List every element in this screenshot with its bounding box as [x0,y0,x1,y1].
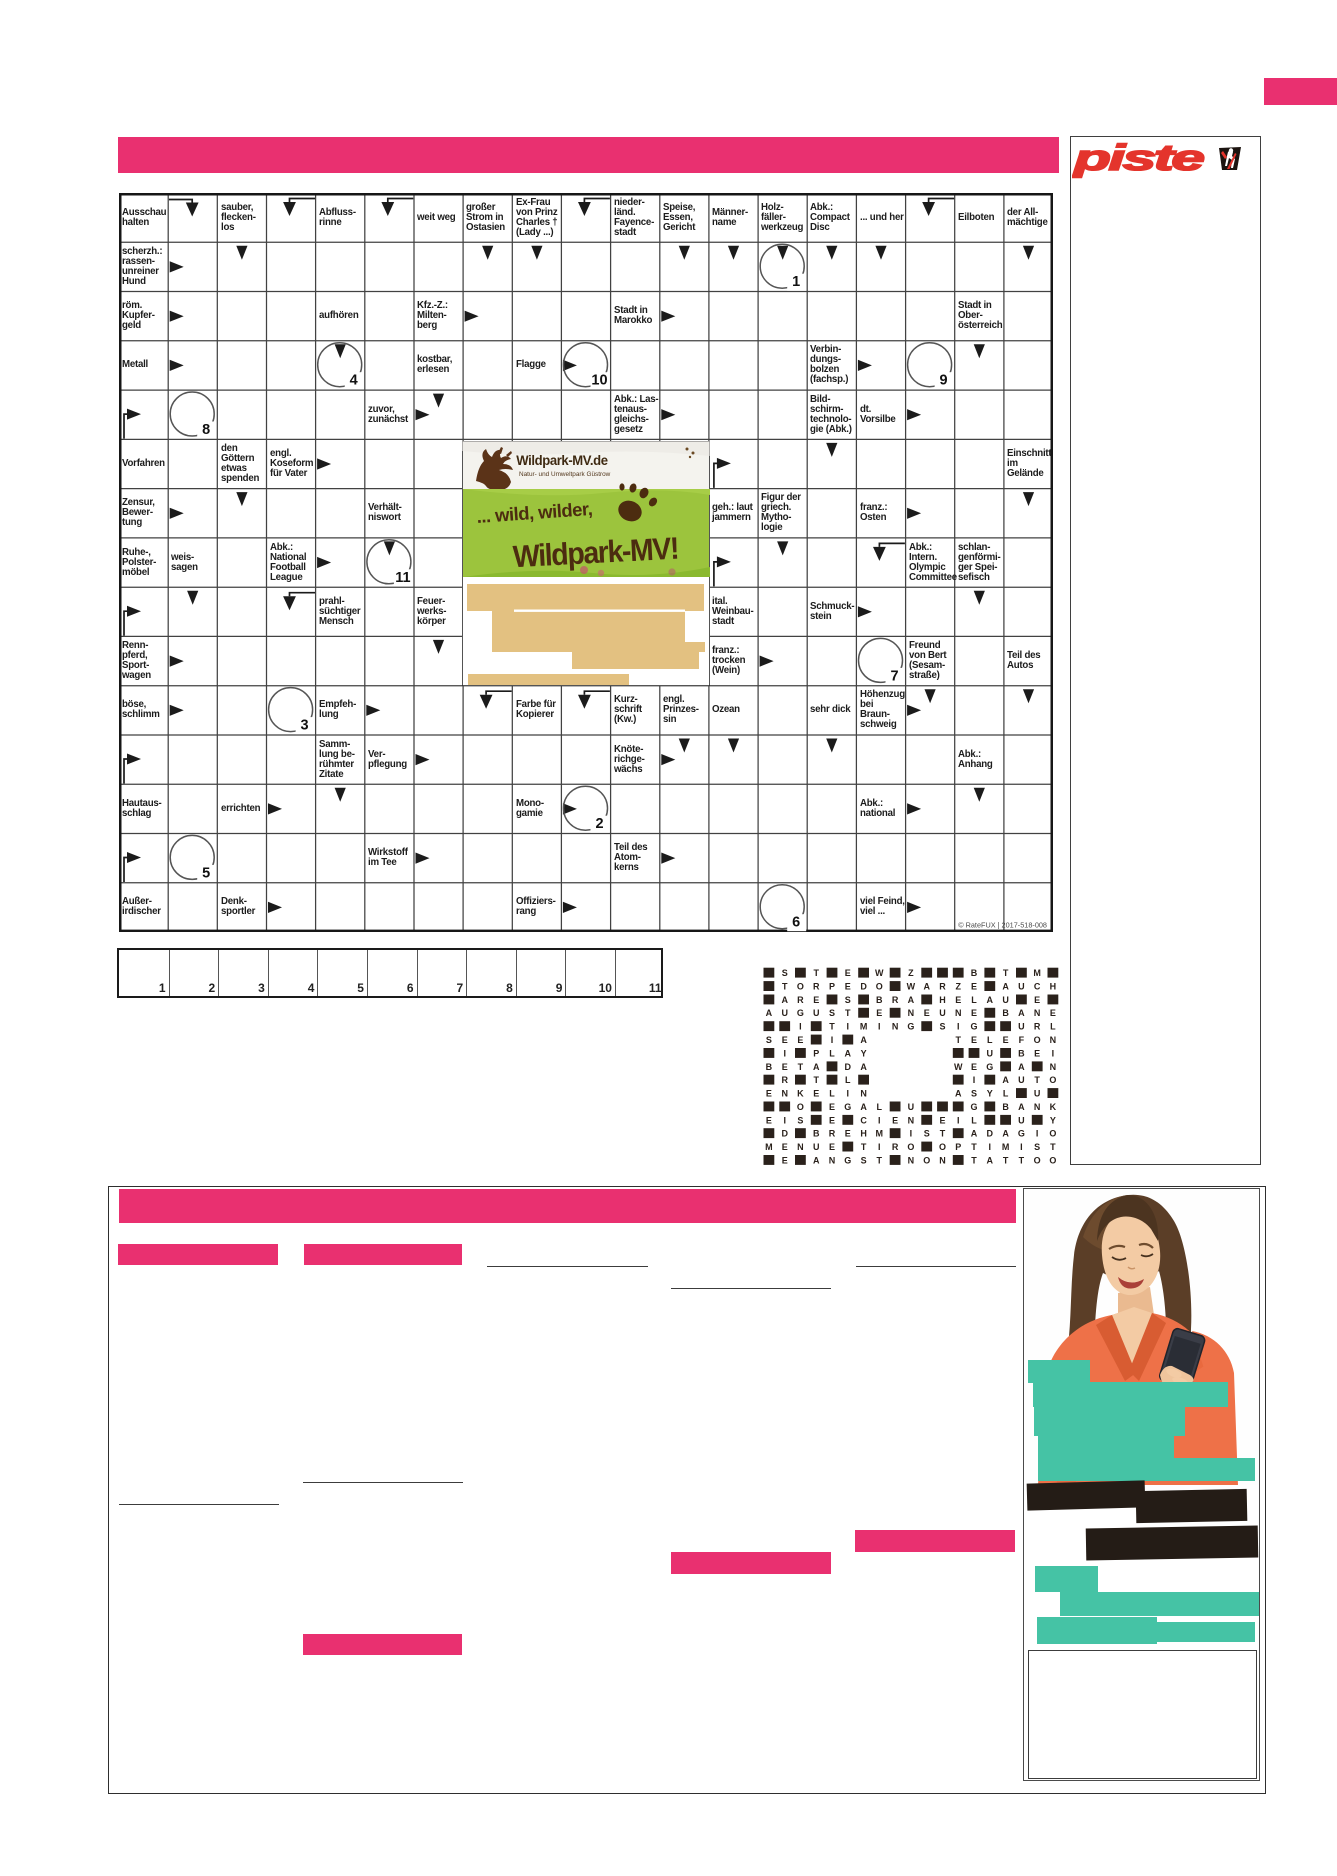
svg-text:T: T [829,1021,835,1031]
svg-text:U: U [1034,1088,1041,1098]
svg-text:M: M [876,1128,884,1138]
svg-text:I: I [1020,1142,1023,1152]
svg-text:H: H [939,994,946,1004]
svg-text:I: I [847,1088,850,1098]
svg-text:E: E [845,1128,851,1138]
svg-text:U: U [1018,1021,1025,1031]
svg-text:© RateFUX | 2017-518-008: © RateFUX | 2017-518-008 [958,921,1047,930]
svg-text:A: A [813,1155,820,1165]
svg-text:I: I [783,1115,786,1125]
svg-text:R: R [829,1128,836,1138]
svg-text:R: R [892,1142,899,1152]
svg-text:U: U [1002,994,1009,1004]
svg-text:R: R [781,1075,788,1085]
svg-text:A: A [860,1101,867,1111]
svg-text:P: P [955,1142,961,1152]
svg-text:A: A [845,1048,852,1058]
svg-text:O: O [923,1155,930,1165]
svg-text:W: W [954,1061,963,1071]
svg-text:N: N [939,1155,946,1165]
svg-text:S: S [766,1035,772,1045]
svg-text:3: 3 [301,718,309,734]
svg-text:S: S [845,994,851,1004]
svg-text:Y: Y [861,1048,867,1058]
svg-text:G: G [907,1021,914,1031]
svg-text:M: M [1002,1142,1010,1152]
svg-text:U: U [1018,981,1025,991]
svg-text:S: S [797,1115,803,1125]
svg-text:I: I [973,1075,976,1085]
svg-text:T: T [861,1142,867,1152]
svg-text:E: E [971,981,977,991]
svg-text:E: E [955,994,961,1004]
svg-text:E: E [1003,1035,1009,1045]
svg-text:G: G [970,1021,977,1031]
svg-text:O: O [1049,1128,1056,1138]
svg-text:A: A [987,1155,994,1165]
svg-text:R: R [797,994,804,1004]
svg-text:L: L [877,1101,883,1111]
svg-text:L: L [971,1115,977,1125]
svg-text:C: C [1034,981,1041,991]
svg-text:Y: Y [1050,1115,1056,1125]
svg-text:U: U [1018,1115,1025,1125]
svg-text:O: O [907,1142,914,1152]
svg-text:S: S [971,1088,977,1098]
svg-text:E: E [782,1035,788,1045]
svg-text:B: B [1018,1048,1025,1058]
svg-text:1: 1 [792,274,800,290]
svg-text:E: E [782,1155,788,1165]
svg-text:T: T [1003,968,1009,978]
svg-text:C: C [860,1115,867,1125]
svg-text:E: E [813,1088,819,1098]
svg-text:T: T [782,981,788,991]
svg-text:A: A [1018,1101,1025,1111]
svg-text:9: 9 [940,373,948,389]
svg-text:B: B [1002,1008,1009,1018]
svg-text:F: F [1019,1035,1025,1045]
svg-text:T: T [813,968,819,978]
svg-text:N: N [908,1155,915,1165]
svg-text:piste: piste [1072,137,1204,178]
svg-text:M: M [1033,968,1041,978]
svg-text:11: 11 [395,570,410,586]
svg-text:O: O [1049,1155,1056,1165]
svg-text:O: O [797,981,804,991]
svg-text:G: G [797,1008,804,1018]
svg-text:E: E [782,1142,788,1152]
svg-text:E: E [845,968,851,978]
svg-text:A: A [971,1128,978,1138]
svg-text:E: E [924,1008,930,1018]
svg-text:I: I [783,1048,786,1058]
svg-text:6: 6 [792,915,800,931]
svg-text:P: P [829,981,835,991]
svg-text:I: I [957,1021,960,1031]
svg-text:L: L [829,1048,835,1058]
svg-text:E: E [766,1088,772,1098]
svg-text:T: T [813,1075,819,1085]
svg-text:5: 5 [202,865,210,881]
svg-text:L: L [987,1035,993,1045]
svg-text:U: U [781,1008,788,1018]
svg-text:Z: Z [908,968,914,978]
svg-text:A: A [1018,1008,1025,1018]
svg-text:E: E [829,1101,835,1111]
svg-text:U: U [1018,1075,1025,1085]
svg-text:P: P [813,1048,819,1058]
svg-text:N: N [860,1088,867,1098]
svg-text:U: U [908,1101,915,1111]
svg-text:T: T [955,1035,961,1045]
svg-text:8: 8 [202,422,210,438]
svg-text:B: B [1002,1101,1009,1111]
svg-text:E: E [971,1061,977,1071]
svg-text:E: E [813,994,819,1004]
svg-text:D: D [860,981,867,991]
svg-text:I: I [878,1021,881,1031]
svg-text:O: O [1034,1035,1041,1045]
svg-text:R: R [1034,1021,1041,1031]
svg-text:S: S [939,1021,945,1031]
svg-text:H: H [1050,981,1057,991]
svg-text:B: B [766,1061,773,1071]
svg-text:7: 7 [890,668,898,684]
svg-text:T: T [1003,1155,1009,1165]
svg-text:10: 10 [591,373,607,389]
svg-text:I: I [878,1115,881,1125]
svg-text:W: W [875,968,884,978]
svg-text:S: S [829,1008,835,1018]
svg-text:E: E [876,1008,882,1018]
svg-text:N: N [908,1008,915,1018]
svg-text:A: A [766,1008,773,1018]
svg-text:N: N [781,1088,788,1098]
svg-text:K: K [797,1088,804,1098]
svg-text:A: A [1002,981,1009,991]
svg-text:W: W [907,981,916,991]
svg-text:B: B [971,968,978,978]
svg-text:N: N [1050,1061,1057,1071]
svg-text:4: 4 [350,373,358,389]
svg-text:O: O [876,981,883,991]
svg-text:A: A [955,1088,962,1098]
svg-text:D: D [987,1128,994,1138]
svg-text:T: T [798,1061,804,1071]
svg-text:N: N [829,1155,836,1165]
svg-text:G: G [970,1101,977,1111]
svg-text:I: I [831,1035,834,1045]
svg-text:B: B [876,994,883,1004]
svg-text:Natur- und Umweltpark Güstrow: Natur- und Umweltpark Güstrow [519,471,611,478]
svg-text:L: L [1050,1021,1056,1031]
svg-text:E: E [766,1115,772,1125]
svg-text:E: E [829,1115,835,1125]
svg-text:I: I [910,1128,913,1138]
svg-text:I: I [989,1142,992,1152]
svg-text:E: E [892,1115,898,1125]
svg-text:L: L [845,1075,851,1085]
svg-text:U: U [939,1008,946,1018]
svg-text:N: N [1034,1008,1041,1018]
svg-text:M: M [765,1142,773,1152]
svg-text:I: I [847,1021,850,1031]
svg-text:E: E [782,1061,788,1071]
svg-text:I: I [957,1115,960,1125]
svg-text:A: A [781,994,788,1004]
svg-text:Wildpark-MV.de: Wildpark-MV.de [516,452,607,467]
svg-text:E: E [829,1142,835,1152]
svg-text:T: T [1050,1142,1056,1152]
svg-text:O: O [797,1101,804,1111]
svg-text:T: T [940,1128,946,1138]
svg-text:Y: Y [987,1088,993,1098]
svg-text:N: N [1034,1101,1041,1111]
svg-text:A: A [1018,1061,1025,1071]
svg-text:A: A [813,1061,820,1071]
svg-text:D: D [781,1128,788,1138]
svg-text:N: N [797,1142,804,1152]
svg-text:G: G [986,1061,993,1071]
svg-text:A: A [1002,1075,1009,1085]
svg-text:E: E [1034,994,1040,1004]
svg-text:E: E [845,981,851,991]
svg-text:U: U [813,1008,820,1018]
svg-text:A: A [987,994,994,1004]
svg-text:S: S [861,1155,867,1165]
svg-text:A: A [860,1061,867,1071]
svg-text:N: N [908,1115,915,1125]
svg-text:T: T [845,1008,851,1018]
svg-text:R: R [892,994,899,1004]
svg-text:N: N [955,1008,962,1018]
svg-text:G: G [844,1101,851,1111]
svg-text:R: R [939,981,946,991]
svg-text:S: S [924,1128,930,1138]
svg-text:T: T [1019,1155,1025,1165]
svg-text:M: M [860,1021,868,1031]
svg-text:2: 2 [595,816,603,832]
svg-text:G: G [844,1155,851,1165]
svg-text:S: S [782,968,788,978]
svg-text:I: I [878,1142,881,1152]
svg-text:L: L [971,994,977,1004]
svg-text:L: L [829,1088,835,1098]
svg-text:H: H [860,1128,867,1138]
svg-text:T: T [971,1155,977,1165]
svg-text:K: K [1050,1101,1057,1111]
svg-text:N: N [1050,1035,1057,1045]
svg-text:L: L [1003,1088,1009,1098]
svg-text:T: T [1034,1075,1040,1085]
svg-text:O: O [939,1142,946,1152]
svg-text:R: R [813,981,820,991]
svg-text:E: E [1034,1048,1040,1058]
svg-text:A: A [1002,1128,1009,1138]
svg-text:U: U [987,1048,994,1058]
svg-text:E: E [971,1008,977,1018]
svg-text:G: G [1018,1128,1025,1138]
svg-text:B: B [813,1128,820,1138]
svg-text:T: T [877,1155,883,1165]
svg-text:E: E [939,1115,945,1125]
svg-text:I: I [799,1021,802,1031]
svg-text:N: N [892,1021,899,1031]
svg-text:I: I [1052,1048,1055,1058]
svg-text:D: D [845,1061,852,1071]
svg-text:Z: Z [955,981,961,991]
svg-text:I: I [1036,1128,1039,1138]
svg-text:U: U [813,1142,820,1152]
svg-text:O: O [1049,1075,1056,1085]
svg-text:E: E [971,1035,977,1045]
svg-text:E: E [797,1035,803,1045]
svg-text:T: T [971,1142,977,1152]
svg-text:O: O [1034,1155,1041,1165]
svg-text:A: A [908,994,915,1004]
svg-text:A: A [923,981,930,991]
svg-text:S: S [1034,1142,1040,1152]
svg-text:A: A [860,1035,867,1045]
svg-text:E: E [1050,1008,1056,1018]
